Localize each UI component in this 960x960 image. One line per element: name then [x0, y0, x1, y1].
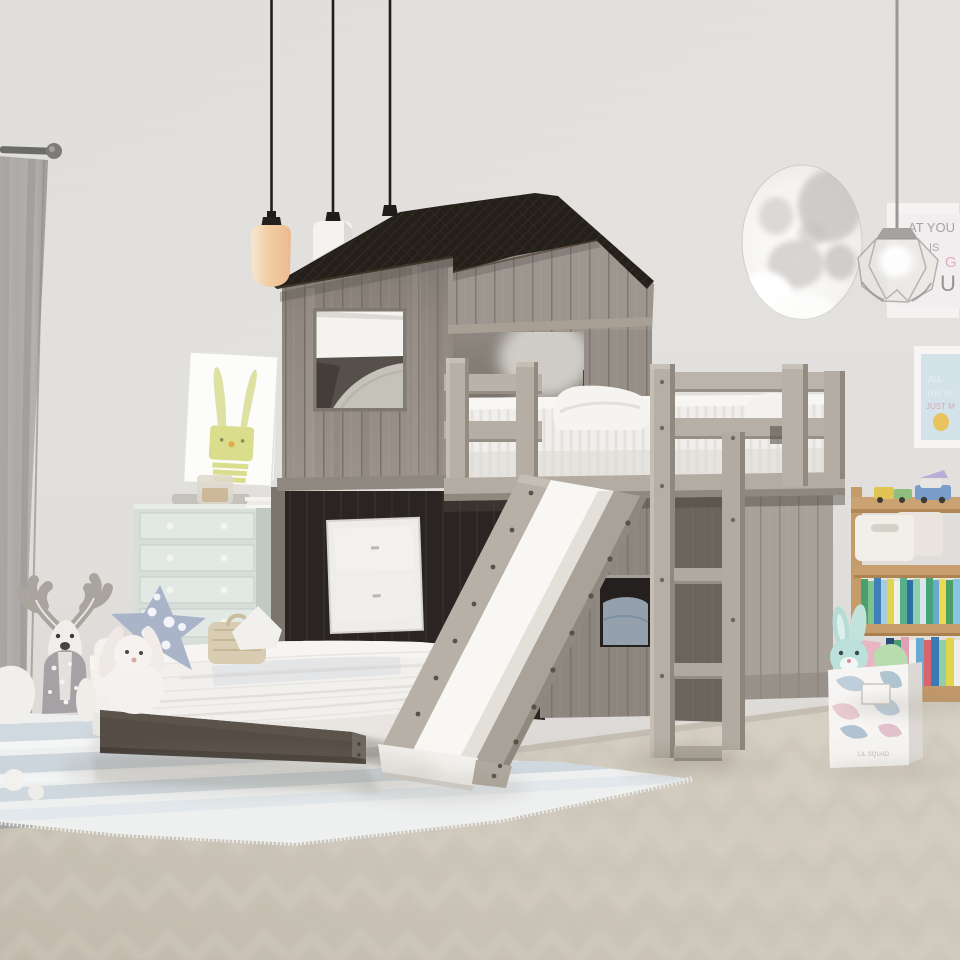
- svg-text:THE MI: THE MI: [926, 389, 953, 398]
- svg-text:AT YOU: AT YOU: [908, 220, 955, 235]
- svg-text:ALL: ALL: [928, 375, 943, 384]
- svg-text:U: U: [940, 271, 956, 296]
- svg-text:JUST M: JUST M: [926, 402, 955, 411]
- svg-text:G: G: [945, 254, 957, 271]
- svg-text:LIL SQUAD: LIL SQUAD: [858, 752, 890, 758]
